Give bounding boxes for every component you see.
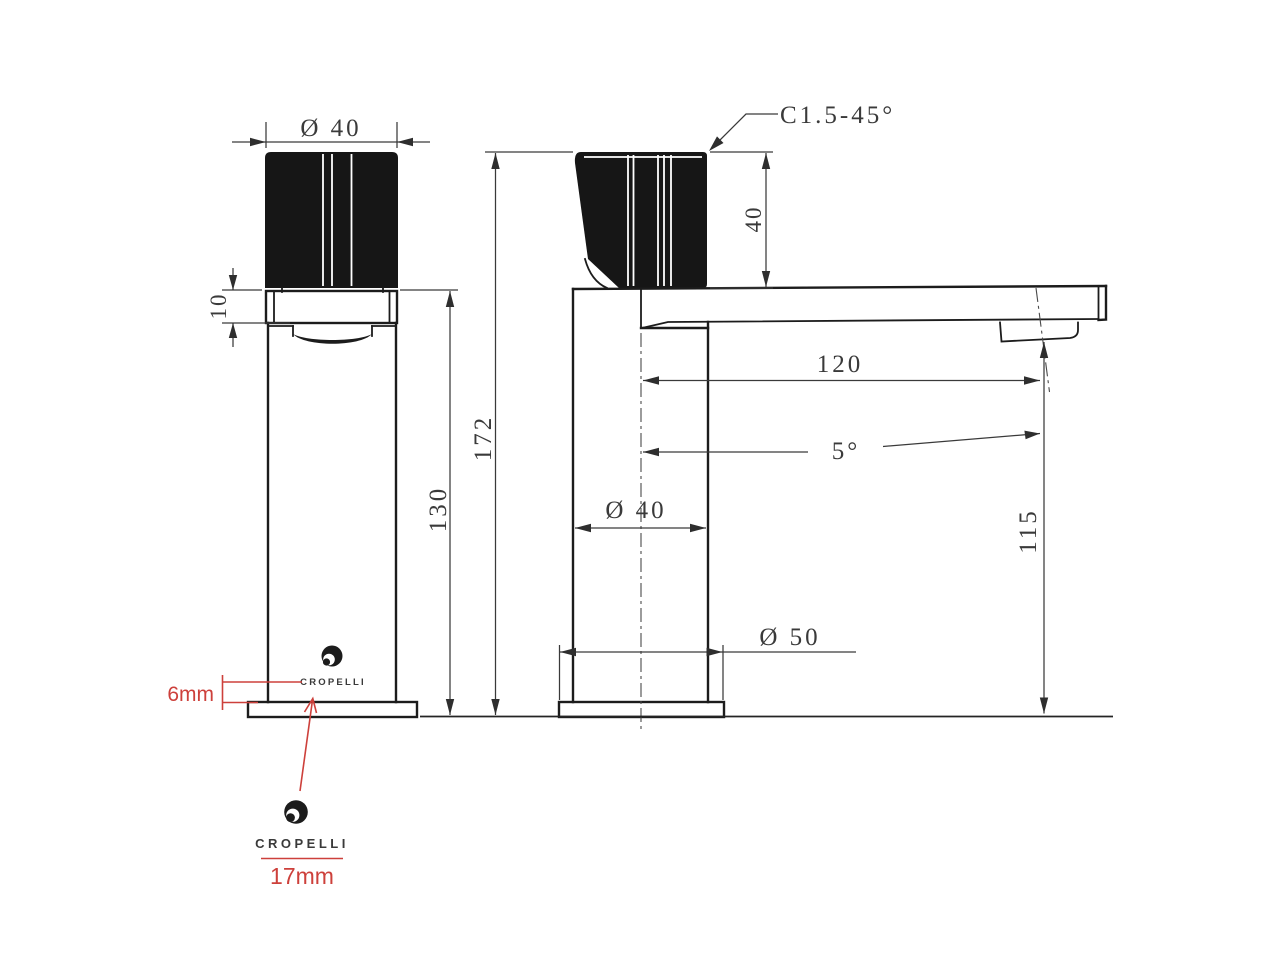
front-view: CROPELLI: [248, 152, 417, 717]
dim-spout-reach-label: 120: [817, 351, 864, 378]
arrowhead: [1040, 698, 1048, 714]
arrowhead: [690, 524, 706, 532]
arrowhead: [491, 699, 499, 715]
spout-outlet-inset: [293, 326, 372, 336]
dim-body-height-label: 130: [425, 486, 452, 533]
spout-bottom-edge: [644, 319, 1099, 328]
cropelli-logo-large-icon: [284, 800, 308, 824]
small-logo-size-label: 6mm: [167, 683, 214, 706]
dim-collar-height-label: 10: [206, 293, 231, 320]
handle-side: [575, 152, 707, 288]
technical-drawing-canvas: CROPELLI Ø 40 10 130 172: [0, 0, 1280, 960]
brand-annotations: 6mm CROPELLI 17mm: [167, 675, 349, 889]
large-logo-size-label: 17mm: [270, 863, 334, 889]
dim-base-diameter-label: Ø 50: [759, 624, 820, 651]
arrowhead: [575, 524, 591, 532]
arrowhead: [491, 153, 499, 169]
collar-front-inner-lines: [274, 291, 390, 323]
arrowhead: [762, 153, 770, 169]
collar-front: [266, 291, 397, 323]
arrowhead: [707, 648, 723, 656]
logo-swoosh-dark: [286, 813, 295, 822]
spout-end-cap: [1099, 286, 1107, 320]
dim-chamfer-label: C1.5-45°: [780, 102, 895, 129]
dim-underspout-height-label: 115: [1015, 508, 1042, 554]
arrowhead: [1040, 342, 1048, 358]
arrowhead: [229, 275, 237, 290]
dim-handle-diameter-label: Ø 40: [300, 115, 361, 142]
body-front-sides: [268, 323, 396, 702]
base-front: [248, 702, 417, 717]
arrowhead: [250, 138, 266, 146]
logo-swoosh-dark: [323, 658, 330, 665]
dim-spout-angle-label: 5°: [832, 438, 861, 465]
dim-overall-height-label: 172: [470, 415, 497, 462]
arrowhead: [446, 291, 454, 307]
arrowhead: [643, 448, 659, 456]
arrowhead: [446, 699, 454, 715]
dim-body-diameter-label: Ø 40: [605, 497, 666, 524]
arrowhead: [762, 271, 770, 287]
arrowhead: [560, 648, 576, 656]
arrowhead: [397, 138, 413, 146]
dim-handle-height-label: 40: [741, 206, 766, 233]
arrowhead: [1024, 431, 1040, 440]
arrowhead: [229, 323, 237, 338]
brand-text-on-body: CROPELLI: [300, 677, 366, 688]
dim-angle-slanted-line: [883, 434, 1040, 447]
spout-outlet-arc: [293, 334, 372, 344]
cropelli-logo-small-icon: [322, 646, 343, 667]
logo-pointer-line: [300, 700, 313, 791]
logo-size-bracket: [223, 675, 303, 710]
aerator: [1000, 323, 1078, 342]
drawing-svg: CROPELLI Ø 40 10 130 172: [0, 0, 1280, 960]
arrowhead: [1024, 376, 1040, 384]
brand-text-large: CROPELLI: [255, 836, 349, 851]
arrowhead: [643, 376, 659, 384]
